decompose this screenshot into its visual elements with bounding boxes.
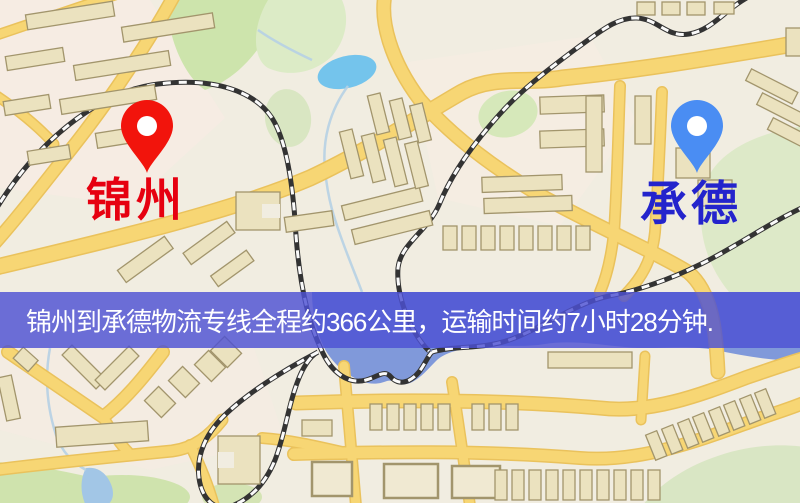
route-info-text: 锦州到承德物流专线全程约366公里，运输时间约7小时28分钟. <box>26 302 713 339</box>
destination-city-label: 承德 <box>640 182 742 229</box>
route-info-banner: 锦州到承德物流专线全程约366公里，运输时间约7小时28分钟. <box>0 292 800 348</box>
origin-city-label: 锦州 <box>86 178 186 224</box>
map-canvas <box>0 0 800 503</box>
logistics-route-map: 锦州 承德 锦州到承德物流专线全程约366公里，运输时间约7小时28分钟. <box>0 0 800 503</box>
